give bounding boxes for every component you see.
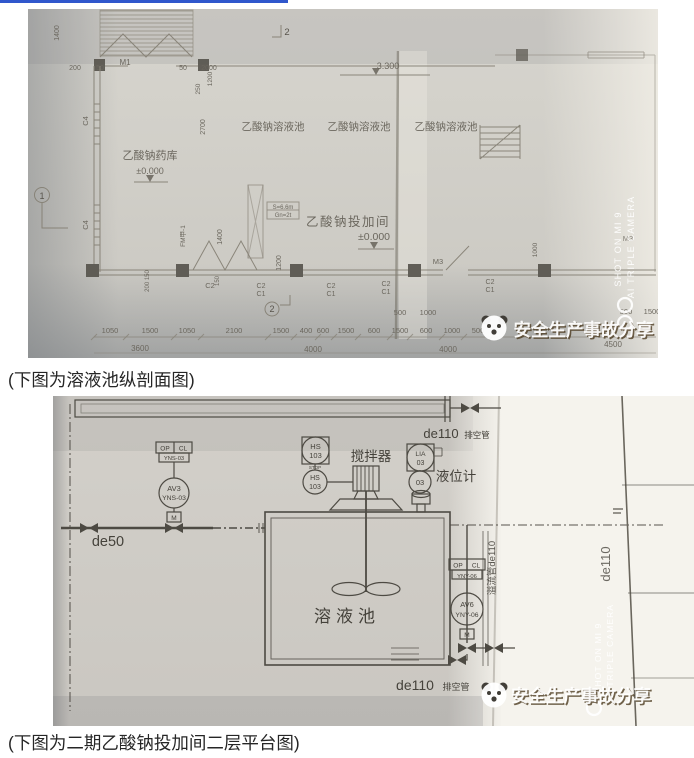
- pipe-de110-top-label: de110: [423, 426, 458, 441]
- door-fm-label: FM甲-1: [179, 225, 187, 247]
- dim-row1: 1050: [102, 326, 119, 335]
- lia-square-tag: LIA: [415, 451, 426, 458]
- vent-bottom-label: 排空管: [442, 681, 469, 692]
- av6-valve-code: YNY-06: [455, 612, 478, 619]
- dim-mid: 1000: [420, 308, 437, 317]
- window-pair-c2: C2: [382, 281, 391, 288]
- av6-valve-tag: AV6: [460, 600, 474, 609]
- area-box-line2: Gn=2t: [275, 213, 292, 219]
- elev-ground-left: ±0.000: [136, 166, 163, 176]
- dim-200-150: 200 150: [145, 270, 151, 292]
- dim-1400b: 1400: [217, 229, 224, 245]
- dim-50b: 50: [179, 65, 187, 72]
- window-c4b-label: C4: [81, 220, 90, 230]
- pipe-de50-label: de50: [92, 534, 124, 550]
- m-actuator-label: M: [171, 515, 176, 522]
- area-box-line1: S=6.6m: [273, 205, 294, 211]
- pool-label-3: 乙酸钠溶液池: [415, 120, 478, 133]
- av3-valve-code: YNS-03: [162, 495, 186, 502]
- overflow-pipe-label: 溢流管de110: [486, 541, 498, 595]
- dosing-room-label: 乙酸钠投加间: [306, 214, 390, 229]
- hs-square-num: 103: [309, 451, 322, 460]
- level-gauge-label: 液位计: [436, 469, 477, 484]
- box2-code: YNY-06: [457, 574, 477, 580]
- m-actuator-label: M: [464, 632, 469, 639]
- window-pair-c1: C1: [486, 287, 495, 294]
- window-pair-c1: C1: [257, 291, 266, 298]
- dim-row1: 600: [420, 326, 433, 335]
- pool-label-2: 乙酸钠溶液池: [328, 120, 391, 133]
- dim-250: 250: [195, 83, 202, 94]
- window-pair-c2: C2: [257, 283, 266, 290]
- caption-platform-view: (下图为二期乙酸钠投加间二层平台图): [8, 731, 300, 755]
- lia-square-num: 03: [417, 460, 425, 467]
- window-pair-c2: C2: [486, 279, 495, 286]
- stop-label: STOP: [309, 465, 321, 470]
- window-pair-c1: C1: [382, 289, 391, 296]
- av3-valve-tag: AV3: [167, 484, 181, 493]
- dim-1200b: 1200: [276, 255, 283, 271]
- door-m3-label: M3: [433, 257, 443, 266]
- dim-row1: 2100: [226, 326, 243, 335]
- shot-on-text: SHOT ON MI 9: [613, 211, 623, 286]
- cl-label: CL: [472, 563, 481, 570]
- window-pair-c2: C2: [327, 283, 336, 290]
- dim-row2: 3600: [131, 344, 149, 353]
- brand-watermark: 安全生产事故分享: [514, 320, 654, 340]
- grid-bubble-2-top: 2: [284, 27, 289, 38]
- dim-2700: 2700: [200, 119, 207, 135]
- vent-top-label: 排空管: [464, 430, 490, 440]
- dim-row1: 1500: [273, 326, 290, 335]
- dim-200: 200: [69, 65, 81, 72]
- hs-circle-num: 103: [309, 484, 321, 491]
- dim-row1: 600: [317, 326, 330, 335]
- window-pair-c1: C1: [327, 291, 336, 298]
- top-divider-bar: [0, 0, 288, 3]
- window-c2-left-label: C2: [205, 281, 215, 290]
- hs-circle-tag: HS: [310, 475, 320, 482]
- photo-pid-diagram[interactable]: 搅拌器 液位计 溶液池 de50 de110 排空管 de110 排空管 de1…: [53, 396, 694, 726]
- caption-section-view: (下图为溶液池纵剖面图): [8, 368, 195, 392]
- dim-50a: 50: [96, 65, 104, 72]
- grid-bubble-2-bottom: 2: [269, 304, 274, 314]
- cl-label: CL: [179, 446, 188, 453]
- dim-row1: 1050: [179, 326, 196, 335]
- dim-row1: 1500: [392, 326, 409, 335]
- dim-row1: 1500: [338, 326, 355, 335]
- brand-watermark: 安全生产事故分享: [511, 686, 651, 706]
- dim-2000: 2000: [201, 65, 217, 72]
- dim-1200: 1200: [207, 71, 214, 86]
- lt-circle-num: 03: [416, 478, 424, 487]
- agitator-label: 搅拌器: [351, 449, 392, 464]
- dim-row2: 4000: [304, 345, 322, 354]
- storage-room-label: 乙酸钠药库: [123, 148, 178, 162]
- dim-row1: 600: [368, 326, 381, 335]
- dim-row1: 1500: [142, 326, 159, 335]
- box1-code: YNS-03: [164, 456, 184, 462]
- pipe-de110-right-label: de110: [598, 546, 613, 581]
- photo-floor-plan[interactable]: 乙酸钠溶液池 乙酸钠溶液池 乙酸钠溶液池 乙酸钠药库 乙酸钠投加间 ±0.000…: [28, 9, 658, 358]
- shot-on-text: SHOT ON MI 9: [593, 623, 603, 694]
- pool-label-1: 乙酸钠溶液池: [242, 120, 305, 133]
- op-label: OP: [160, 446, 169, 453]
- dim-right: 1500: [644, 307, 658, 316]
- dim-mid: 500: [394, 308, 407, 317]
- article-page: 乙酸钠溶液池 乙酸钠溶液池 乙酸钠溶液池 乙酸钠药库 乙酸钠投加间 ±0.000…: [0, 0, 694, 758]
- dim-row1: 1000: [444, 326, 461, 335]
- hs-square-tag: HS: [310, 442, 320, 451]
- door-m1-label: M1: [119, 58, 131, 67]
- dim-1400: 1400: [54, 25, 61, 41]
- pipe-de110-bottom-label: de110: [396, 677, 434, 693]
- dim-150: 150: [215, 275, 221, 286]
- dim-row2: 4000: [439, 345, 457, 354]
- window-c4a-label: C4: [81, 116, 90, 126]
- tank-label: 溶液池: [314, 607, 380, 626]
- camera-text: AI TRIPLE CAMERA: [626, 196, 636, 299]
- dim-row1: 400: [300, 326, 313, 335]
- dim-1000r: 1000: [532, 242, 539, 257]
- elev-ground-center: ±0.000: [358, 231, 390, 243]
- op-label: OP: [453, 563, 462, 570]
- grid-bubble-1: 1: [39, 191, 44, 201]
- elev-pool-top: 3.300: [377, 61, 400, 71]
